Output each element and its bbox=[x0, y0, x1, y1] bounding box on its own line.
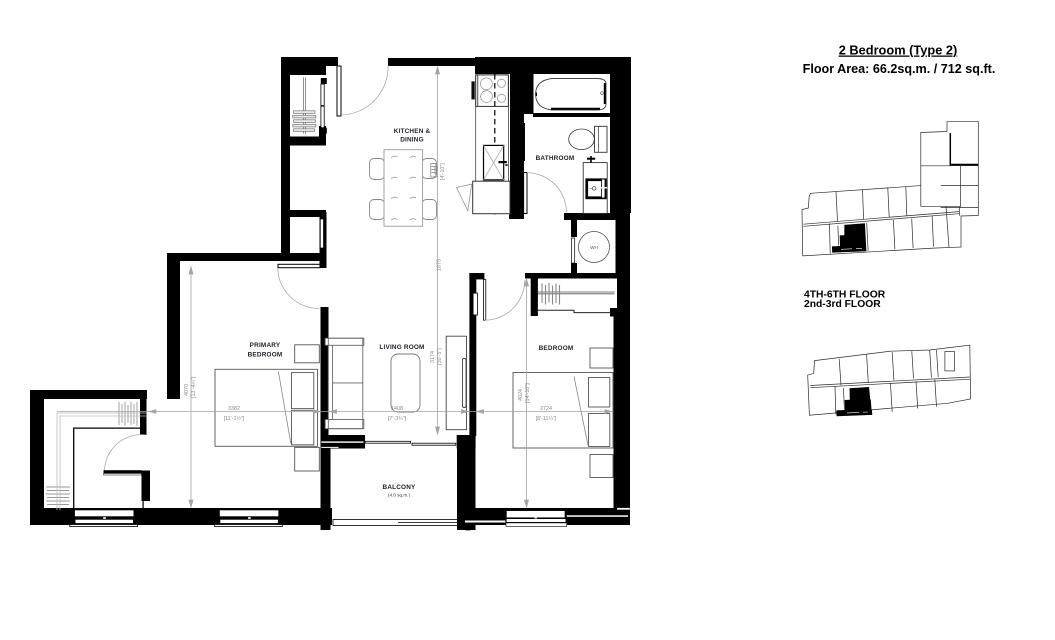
svg-text:KITCHEN &: KITCHEN & bbox=[394, 128, 431, 135]
svg-text:(4.0 sq.m.): (4.0 sq.m.) bbox=[388, 493, 410, 498]
svg-text:1408: 1408 bbox=[391, 406, 403, 412]
svg-text:[11'-1½"]: [11'-1½"] bbox=[224, 415, 245, 422]
svg-text:PRIMARY: PRIMARY bbox=[250, 342, 281, 349]
svg-text:1875: 1875 bbox=[437, 259, 443, 271]
svg-text:Floor Area: 66.2sq.m. / 712 sq: Floor Area: 66.2sq.m. / 712 sq.ft. bbox=[803, 62, 996, 76]
svg-text:LIVING ROOM: LIVING ROOM bbox=[379, 344, 424, 351]
svg-text:[10'-5"]: [10'-5"] bbox=[437, 348, 443, 365]
svg-text:BEDROOM: BEDROOM bbox=[248, 352, 283, 359]
svg-text:BALCONY: BALCONY bbox=[383, 484, 417, 491]
svg-text:[13'-4¼"]: [13'-4¼"] bbox=[191, 376, 197, 398]
svg-text:BATHROOM: BATHROOM bbox=[536, 155, 575, 162]
svg-text:4070: 4070 bbox=[184, 384, 190, 396]
svg-text:[4'-10"]: [4'-10"] bbox=[440, 163, 446, 180]
svg-text:[8'-11¼"]: [8'-11¼"] bbox=[536, 416, 557, 422]
svg-text:2nd-3rd FLOOR: 2nd-3rd FLOOR bbox=[804, 299, 881, 310]
svg-text:3382: 3382 bbox=[228, 406, 240, 412]
svg-text:4024: 4024 bbox=[518, 389, 524, 401]
svg-text:2724: 2724 bbox=[540, 406, 552, 412]
svg-text:DINING: DINING bbox=[400, 137, 424, 144]
svg-text:[7'-3¾"]: [7'-3¾"] bbox=[388, 416, 407, 422]
svg-text:BEDROOM: BEDROOM bbox=[539, 345, 574, 352]
svg-text:2 Bedroom (Type 2): 2 Bedroom (Type 2) bbox=[839, 43, 958, 58]
svg-text:[14'-10"]: [14'-10"] bbox=[525, 383, 531, 403]
svg-text:WH: WH bbox=[590, 245, 598, 250]
svg-text:3174: 3174 bbox=[430, 351, 436, 363]
